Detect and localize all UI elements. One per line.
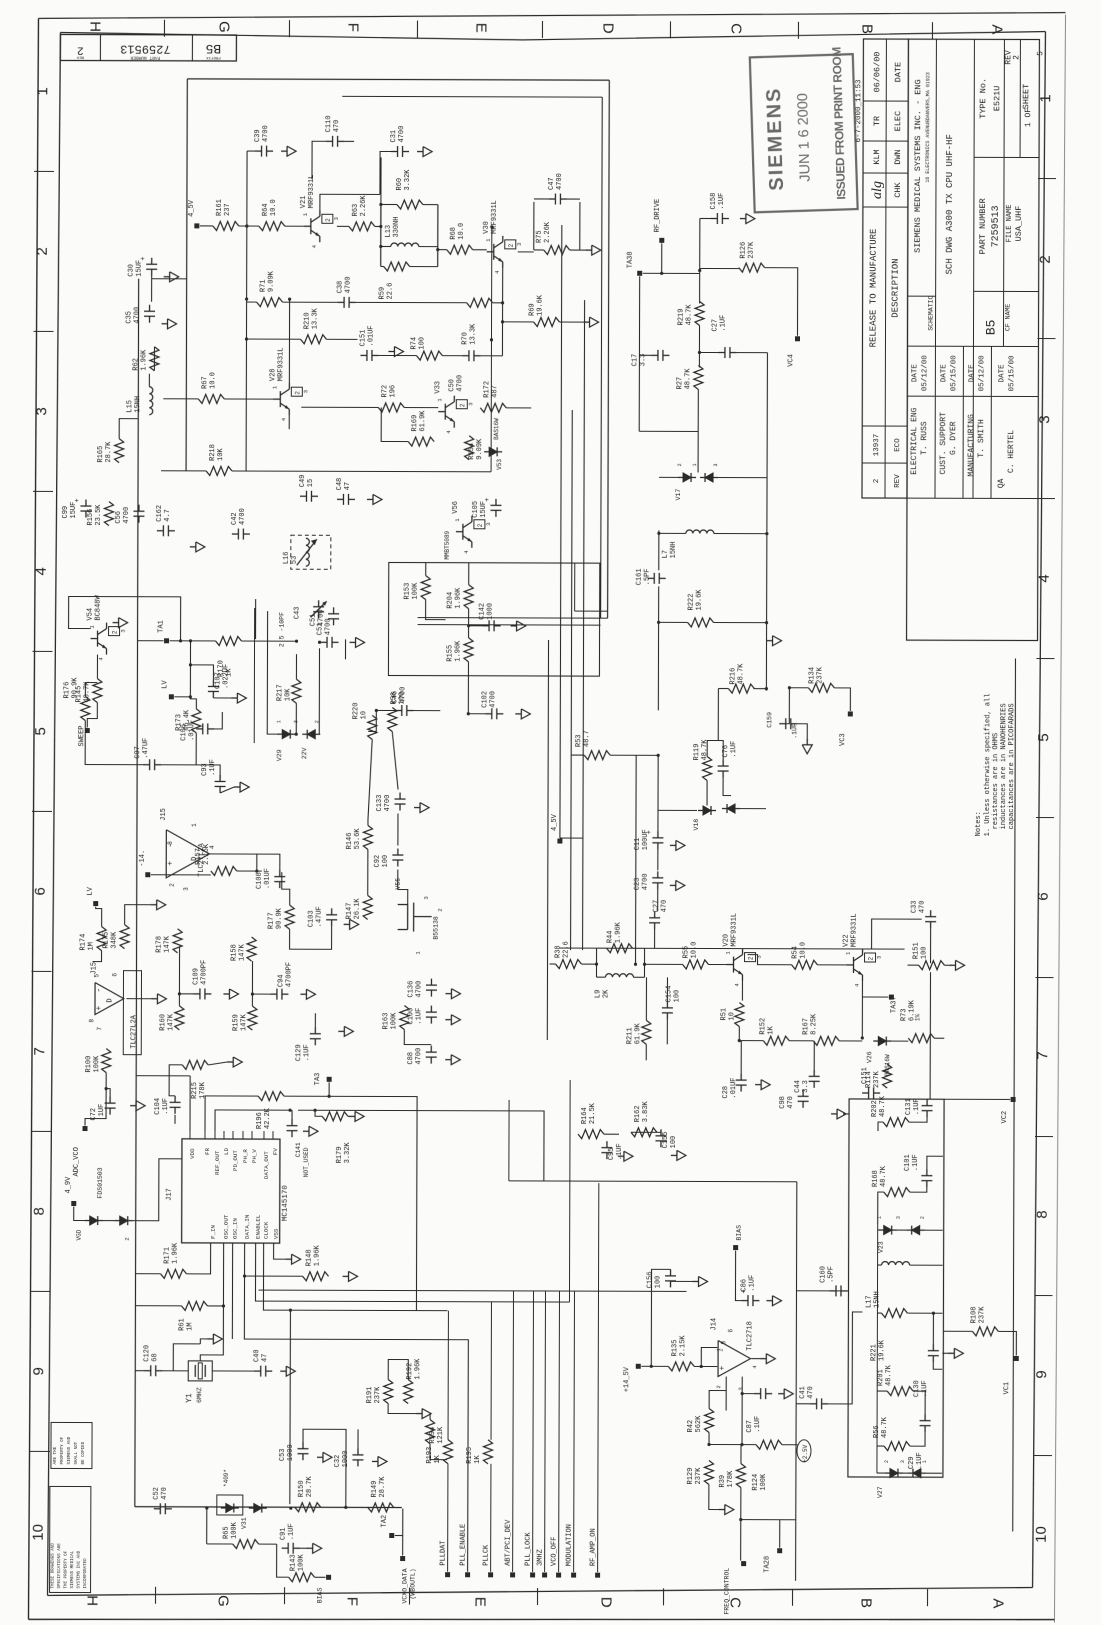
svg-text:C160: C160 xyxy=(820,1266,828,1283)
svg-text:C103: C103 xyxy=(308,910,316,927)
svg-text:100K: 100K xyxy=(412,582,420,600)
svg-text:DWN: DWN xyxy=(893,149,903,164)
svg-text:ELECTRICAL ENG: ELECTRICAL ENG xyxy=(910,407,919,474)
svg-text:9.09K: 9.09K xyxy=(476,438,484,460)
svg-text:C52: C52 xyxy=(153,1487,161,1500)
svg-text:J15: J15 xyxy=(90,962,98,975)
svg-text:CUST. SUPPORT: CUST. SUPPORT xyxy=(939,412,948,475)
svg-text:PLLCK: PLLCK xyxy=(483,1544,491,1566)
svg-text:1: 1 xyxy=(692,463,698,466)
svg-text:DATE: DATE xyxy=(911,364,919,383)
svg-text:FREQ_CONTROL: FREQ_CONTROL xyxy=(723,1568,730,1615)
svg-text:R126: R126 xyxy=(740,242,748,259)
svg-text:L13: L13 xyxy=(385,225,393,238)
svg-text:1M: 1M xyxy=(88,942,96,950)
svg-text:B5: B5 xyxy=(984,320,999,336)
svg-text:MRF9331L: MRF9331L xyxy=(308,175,316,209)
svg-text:PART NUMBER: PART NUMBER xyxy=(130,55,160,61)
svg-text:J17: J17 xyxy=(166,1188,174,1201)
svg-text:SIEMENS: SIEMENS xyxy=(763,86,788,191)
svg-text:R150: R150 xyxy=(298,1480,306,1497)
svg-text:15: 15 xyxy=(307,479,315,487)
svg-text:4: 4 xyxy=(33,567,50,575)
svg-text:4_5V: 4_5V xyxy=(551,813,559,831)
svg-text:19.6K: 19.6K xyxy=(696,589,704,611)
svg-text:15NH: 15NH xyxy=(873,1291,881,1308)
svg-text:2: 2 xyxy=(748,956,755,960)
svg-text:15UF: 15UF xyxy=(70,502,78,519)
svg-text:VC2: VC2 xyxy=(1001,1111,1009,1124)
svg-text:C156: C156 xyxy=(647,1271,655,1288)
svg-text:1: 1 xyxy=(922,1460,928,1463)
svg-text:C23: C23 xyxy=(634,878,642,891)
svg-text:28.7K: 28.7K xyxy=(379,1476,387,1498)
svg-text:53: 53 xyxy=(291,556,299,564)
svg-text:470: 470 xyxy=(333,120,341,133)
svg-text:2: 2 xyxy=(437,908,444,911)
svg-text:100K: 100K xyxy=(231,1521,239,1539)
svg-text:4: 4 xyxy=(209,845,216,849)
svg-text:+: + xyxy=(166,861,175,866)
svg-text:2: 2 xyxy=(873,479,881,484)
svg-text:3: 3 xyxy=(333,217,340,220)
svg-text:G. DYER: G. DYER xyxy=(949,421,958,455)
svg-text:C142: C142 xyxy=(479,603,487,620)
svg-text:(WBOUTL): (WBOUTL) xyxy=(410,1568,417,1599)
svg-text:R53: R53 xyxy=(575,734,583,747)
svg-text:R202: R202 xyxy=(871,1100,879,1117)
svg-text:C94: C94 xyxy=(277,975,285,988)
svg-text:Notes:: Notes: xyxy=(975,811,983,836)
svg-text:8: 8 xyxy=(88,1019,95,1023)
svg-text:.1UF: .1UF xyxy=(720,315,728,332)
svg-text:REF_OUT: REF_OUT xyxy=(214,1150,221,1175)
svg-text:OSC_OUT: OSC_OUT xyxy=(223,1214,230,1239)
svg-text:V53: V53 xyxy=(496,459,503,470)
svg-text:R151: R151 xyxy=(913,942,921,959)
svg-text:CLOCK: CLOCK xyxy=(263,1221,270,1239)
svg-text:DATE: DATE xyxy=(998,364,1006,383)
svg-text:C151: C151 xyxy=(359,330,367,347)
svg-text:R74: R74 xyxy=(410,337,418,350)
svg-text:TLC27L2A: TLC27L2A xyxy=(198,842,206,876)
svg-text:C41: C41 xyxy=(799,1386,807,1399)
svg-text:100: 100 xyxy=(670,1136,678,1149)
svg-text:C47: C47 xyxy=(548,177,556,190)
svg-text:TLC27L2A: TLC27L2A xyxy=(130,1014,138,1048)
svg-text:R69: R69 xyxy=(529,303,537,316)
svg-text:3: 3 xyxy=(120,629,127,632)
svg-text:T. SMITH: T. SMITH xyxy=(977,419,986,458)
svg-text:5: 5 xyxy=(93,974,100,978)
svg-text:alg: alg xyxy=(870,181,885,199)
svg-text:PH_R: PH_R xyxy=(242,1149,249,1163)
svg-text:H: H xyxy=(84,1595,101,1606)
svg-text:VC4: VC4 xyxy=(787,354,795,367)
svg-text:TA38: TA38 xyxy=(627,251,635,268)
svg-text:1.96K: 1.96K xyxy=(414,1358,422,1380)
svg-text:R160: R160 xyxy=(159,1014,167,1031)
svg-text:R152: R152 xyxy=(759,1018,767,1035)
svg-text:4700: 4700 xyxy=(384,795,392,812)
svg-text:2: 2 xyxy=(459,403,466,407)
svg-text:C162: C162 xyxy=(156,505,164,522)
svg-text:SIEMENS MEDICAL SYSTEMS INC. -: SIEMENS MEDICAL SYSTEMS INC. - ENG xyxy=(913,79,924,252)
svg-text:R175: R175 xyxy=(103,932,111,949)
svg-text:MRF9331L: MRF9331L xyxy=(731,913,739,947)
svg-text:C27: C27 xyxy=(712,319,720,332)
svg-text:TA1: TA1 xyxy=(158,620,166,633)
svg-text:E: E xyxy=(472,23,489,33)
svg-text:3: 3 xyxy=(896,1216,902,1219)
svg-text:R58: R58 xyxy=(390,692,398,705)
svg-text:4700PF: 4700PF xyxy=(285,962,293,987)
svg-text:REV: REV xyxy=(76,55,84,59)
svg-text:3: 3 xyxy=(737,1387,744,1390)
svg-text:48.7K: 48.7K xyxy=(881,1416,889,1438)
svg-text:V18: V18 xyxy=(693,819,700,831)
svg-text:C43: C43 xyxy=(294,607,302,620)
svg-text:100: 100 xyxy=(673,990,681,1003)
svg-text:R59: R59 xyxy=(379,287,387,300)
svg-text:C92: C92 xyxy=(374,855,382,868)
svg-text:R162: R162 xyxy=(634,1105,642,1122)
svg-text:100K: 100K xyxy=(760,1473,768,1491)
svg-text:19.6K: 19.6K xyxy=(878,1339,886,1361)
svg-text:MMBT5089: MMBT5089 xyxy=(444,530,451,559)
svg-text:3: 3 xyxy=(756,955,763,958)
svg-text:2: 2 xyxy=(715,1385,722,1388)
svg-text:NOT_USED: NOT_USED xyxy=(303,1147,310,1177)
svg-text:2: 2 xyxy=(1012,55,1021,60)
svg-text:2: 2 xyxy=(294,391,301,395)
svg-text:R39: R39 xyxy=(719,1475,727,1488)
svg-text:3: 3 xyxy=(183,887,190,891)
svg-text:48.7K: 48.7K xyxy=(737,663,745,685)
svg-text:R178: R178 xyxy=(156,936,164,953)
svg-text:E521U: E521U xyxy=(992,86,1002,112)
svg-text:TA3: TA3 xyxy=(314,1073,322,1086)
svg-text:VC1: VC1 xyxy=(1003,1382,1011,1395)
svg-text:2: 2 xyxy=(169,883,176,887)
svg-text:CHK: CHK xyxy=(893,182,903,198)
svg-text:4700: 4700 xyxy=(262,125,270,142)
svg-text:R75: R75 xyxy=(536,230,544,243)
svg-text:100: 100 xyxy=(655,1276,663,1289)
svg-text:10: 10 xyxy=(30,1524,47,1541)
svg-text:.1UF: .1UF xyxy=(913,1098,921,1115)
svg-text:R176: R176 xyxy=(63,682,71,699)
svg-text:6: 6 xyxy=(32,887,49,895)
svg-text:237: 237 xyxy=(224,203,232,216)
svg-text:3: 3 xyxy=(516,243,523,246)
svg-text:R164: R164 xyxy=(581,1107,589,1124)
svg-text:RELEASE TO MANUFACTURE: RELEASE TO MANUFACTURE xyxy=(868,229,878,348)
svg-text:R143: R143 xyxy=(290,1554,298,1571)
svg-text:3: 3 xyxy=(293,720,299,723)
svg-text:V31: V31 xyxy=(241,1517,248,1529)
svg-text:SHALL NOT: SHALL NOT xyxy=(75,1441,79,1464)
svg-text:6: 6 xyxy=(111,973,118,977)
svg-text:ECO: ECO xyxy=(894,438,902,452)
svg-text:61.9K: 61.9K xyxy=(419,410,427,432)
svg-text:C133: C133 xyxy=(376,795,384,812)
svg-text:C155: C155 xyxy=(662,1132,670,1149)
svg-text:15UF: 15UF xyxy=(136,260,144,277)
svg-text:FV: FV xyxy=(272,1148,279,1156)
svg-text:48.7K: 48.7K xyxy=(885,1364,893,1386)
svg-text:10: 10 xyxy=(728,1012,736,1020)
svg-text:.1UF: .1UF xyxy=(718,193,726,210)
svg-text:BE COPIED: BE COPIED xyxy=(82,1441,86,1464)
svg-text:C158: C158 xyxy=(710,193,718,210)
svg-text:V17: V17 xyxy=(675,489,682,501)
svg-text:R146: R146 xyxy=(346,833,354,850)
svg-text:CF NAME: CF NAME xyxy=(1005,304,1012,331)
svg-text:.01UF: .01UF xyxy=(188,720,196,741)
svg-text:SCH DWG A300 TX CPU UHF-HF: SCH DWG A300 TX CPU UHF-HF xyxy=(945,134,955,274)
svg-text:TYPE No.: TYPE No. xyxy=(978,78,988,119)
svg-text:R67: R67 xyxy=(201,376,209,389)
svg-text:B: B xyxy=(858,24,875,34)
svg-text:MANUFACTURING: MANUFACTURING xyxy=(967,414,976,477)
svg-text:2.26K: 2.26K xyxy=(360,195,368,217)
svg-text:.1UF: .1UF xyxy=(209,759,217,776)
svg-text:DATE: DATE xyxy=(940,364,948,383)
svg-text:8: 8 xyxy=(167,841,174,845)
svg-text:D: D xyxy=(598,1597,615,1608)
svg-text:DESCRIPTION: DESCRIPTION xyxy=(891,258,901,317)
svg-text:BIAS: BIAS xyxy=(317,1588,324,1604)
svg-text:R27: R27 xyxy=(676,377,684,390)
svg-text:PD_OUT: PD_OUT xyxy=(232,1150,239,1171)
svg-text:.47UF: .47UF xyxy=(142,738,150,759)
svg-text:15NH: 15NH xyxy=(134,396,142,413)
svg-text:C106: C106 xyxy=(180,724,188,741)
svg-text:ENABLEL: ENABLEL xyxy=(255,1214,262,1239)
svg-text:VSS: VSS xyxy=(273,1228,280,1239)
svg-text:R165: R165 xyxy=(97,446,105,463)
svg-text:.1UF: .1UF xyxy=(288,1523,296,1540)
svg-text:G: G xyxy=(215,21,232,33)
svg-text:R65: R65 xyxy=(223,1526,231,1539)
svg-text:48.7K: 48.7K xyxy=(83,681,91,703)
svg-text:TA37: TA37 xyxy=(890,996,898,1013)
svg-text:VCXO_DATA: VCXO_DATA xyxy=(402,1568,409,1603)
svg-text:C131: C131 xyxy=(905,1098,913,1115)
svg-text:100K: 100K xyxy=(298,1554,306,1572)
svg-text:8: 8 xyxy=(1034,1210,1051,1218)
svg-text:C161: C161 xyxy=(636,568,644,585)
svg-text:V54: V54 xyxy=(87,608,95,621)
svg-text:21.5K: 21.5K xyxy=(589,1102,597,1124)
svg-text:LD: LD xyxy=(223,1147,230,1155)
svg-text:1.96K: 1.96K xyxy=(615,921,623,943)
svg-text:R220: R220 xyxy=(352,703,360,720)
svg-text:C141: C141 xyxy=(295,1142,302,1157)
svg-text:100K: 100K xyxy=(390,1012,398,1030)
svg-text:*409*: *409* xyxy=(223,1469,230,1487)
svg-text:237K: 237K xyxy=(816,666,824,684)
svg-text:4_5V: 4_5V xyxy=(188,199,196,217)
svg-text:16 ELECTRONICS AVENUE: 16 ELECTRONICS AVENUE xyxy=(925,120,931,183)
svg-text:.1UF: .1UF xyxy=(162,1098,170,1115)
svg-text:3: 3 xyxy=(33,407,50,415)
svg-text:C97: C97 xyxy=(134,746,142,759)
svg-text:MRF9331L: MRF9331L xyxy=(851,913,859,947)
svg-text:R156: R156 xyxy=(87,509,95,526)
svg-text:A: A xyxy=(988,24,1005,34)
svg-text:R71: R71 xyxy=(260,279,268,292)
svg-text:R169: R169 xyxy=(411,415,419,432)
svg-text:V21: V21 xyxy=(300,196,308,209)
svg-text:R179: R179 xyxy=(336,1147,344,1164)
svg-text:C50: C50 xyxy=(448,379,456,392)
svg-text:3: 3 xyxy=(423,896,430,899)
svg-text:10K: 10K xyxy=(284,688,292,701)
svg-text:C109: C109 xyxy=(192,968,200,985)
svg-text:PLL_ENABLE: PLL_ENABLE xyxy=(460,1524,468,1566)
svg-text:L7: L7 xyxy=(662,550,670,558)
svg-text:237K: 237K xyxy=(978,1306,986,1324)
svg-text:C120: C120 xyxy=(143,1345,151,1362)
svg-text:C107: C107 xyxy=(214,672,222,689)
svg-text:TLC2718: TLC2718 xyxy=(746,1321,754,1350)
svg-text:R55: R55 xyxy=(683,946,691,959)
svg-text:100: 100 xyxy=(418,337,426,350)
svg-text:7259513: 7259513 xyxy=(991,205,1002,247)
svg-text:RF_AMP_ON: RF_AMP_ON xyxy=(590,1528,598,1566)
svg-text:3MHZ: 3MHZ xyxy=(537,1549,545,1566)
svg-text:2K: 2K xyxy=(602,989,610,998)
svg-text:13.3K: 13.3K xyxy=(469,323,477,345)
svg-text:05/12/00: 05/12/00 xyxy=(978,355,986,392)
svg-text:1000: 1000 xyxy=(487,603,495,620)
svg-text:+2.5V: +2.5V xyxy=(802,1444,809,1462)
svg-text:4700: 4700 xyxy=(239,508,247,525)
svg-text:C102: C102 xyxy=(481,691,489,708)
svg-text:28.7K: 28.7K xyxy=(306,1475,314,1497)
svg-text:VGD: VGD xyxy=(76,1229,83,1240)
svg-text:J15: J15 xyxy=(160,808,168,821)
svg-text:C32: C32 xyxy=(334,1455,342,1468)
svg-text:7: 7 xyxy=(1034,1051,1051,1059)
svg-text:SIEMENS MEDICAL: SIEMENS MEDICAL xyxy=(71,1550,75,1588)
svg-text:C129: C129 xyxy=(295,1044,303,1061)
svg-text:C31: C31 xyxy=(390,130,398,143)
svg-text:R51: R51 xyxy=(720,1008,728,1021)
svg-text:FDS01503: FDS01503 xyxy=(97,1167,104,1198)
svg-text:.1UF: .1UF xyxy=(791,723,798,739)
svg-text:C42: C42 xyxy=(231,512,239,525)
svg-text:+: + xyxy=(95,1006,104,1011)
svg-text:LV: LV xyxy=(87,886,95,895)
svg-text:L9: L9 xyxy=(594,990,602,998)
svg-text:J14: J14 xyxy=(710,1318,718,1331)
svg-text:90.9K: 90.9K xyxy=(71,677,79,699)
svg-text:1: 1 xyxy=(276,720,282,723)
svg-text:R219: R219 xyxy=(678,309,686,326)
svg-text:23.5K: 23.5K xyxy=(95,504,103,526)
svg-text:C53: C53 xyxy=(279,1449,287,1462)
svg-text:R100: R100 xyxy=(85,1056,93,1073)
svg-text:.1UF: .1UF xyxy=(303,1044,311,1061)
svg-text:Y1: Y1 xyxy=(185,1393,194,1403)
svg-text:C29: C29 xyxy=(908,1457,916,1470)
svg-text:R222: R222 xyxy=(688,594,696,611)
svg-text:2: 2 xyxy=(508,243,515,247)
svg-text:.1UF: .1UF xyxy=(730,741,738,758)
svg-text:R218: R218 xyxy=(209,444,217,461)
svg-text:R56: R56 xyxy=(873,1425,881,1438)
svg-text:237K: 237K xyxy=(748,241,756,259)
svg-text:C95: C95 xyxy=(608,1148,616,1161)
svg-text:28.7K: 28.7K xyxy=(105,441,113,463)
svg-text:C87: C87 xyxy=(746,1420,754,1433)
svg-text:SYSTEMS INC AND: SYSTEMS INC AND xyxy=(78,1550,82,1588)
svg-text:5: 5 xyxy=(1035,733,1052,741)
svg-text:237K: 237K xyxy=(873,1070,881,1088)
svg-text:15NH: 15NH xyxy=(670,542,678,559)
svg-text:C88: C88 xyxy=(407,1052,415,1065)
svg-text:3.83K: 3.83K xyxy=(642,1100,650,1122)
svg-text:DATA_IN: DATA_IN xyxy=(244,1214,251,1239)
svg-text:V56: V56 xyxy=(452,501,460,514)
svg-text:1K: 1K xyxy=(767,1025,775,1034)
svg-text:R72: R72 xyxy=(381,385,389,398)
svg-text:7: 7 xyxy=(96,1027,103,1031)
svg-text:100UF: 100UF xyxy=(642,829,650,850)
svg-text:R174: R174 xyxy=(80,934,88,951)
svg-text:3: 3 xyxy=(302,390,309,393)
svg-text:.5PF: .5PF xyxy=(828,1266,836,1283)
svg-text:05/15/00: 05/15/00 xyxy=(950,355,958,392)
svg-text:FILE NAME: FILE NAME xyxy=(1006,205,1014,243)
svg-text:VCO_OFF: VCO_OFF xyxy=(551,1537,559,1566)
svg-text:.022UF: .022UF xyxy=(222,664,230,689)
svg-text:4.7: 4.7 xyxy=(164,509,172,522)
svg-text:V23: V23 xyxy=(878,1241,885,1253)
svg-text:C159: C159 xyxy=(766,712,773,728)
svg-text:R221: R221 xyxy=(870,1344,878,1361)
svg-text:C104: C104 xyxy=(154,1098,162,1115)
svg-text:TA28: TA28 xyxy=(764,1556,772,1573)
svg-text:C91: C91 xyxy=(280,1528,288,1541)
svg-text:R158: R158 xyxy=(231,944,239,961)
svg-text:.1UF: .1UF xyxy=(754,1416,762,1433)
svg-text:2: 2 xyxy=(920,1216,926,1219)
svg-text:ABT/PCI_DEV: ABT/PCI_DEV xyxy=(505,1519,513,1566)
svg-text:7: 7 xyxy=(31,1047,48,1055)
svg-text:C98: C98 xyxy=(779,1096,787,1109)
svg-text:3: 3 xyxy=(485,522,492,525)
svg-text:470: 470 xyxy=(919,901,927,914)
svg-text:4700: 4700 xyxy=(398,126,406,143)
svg-text:JUN 1 6 2000: JUN 1 6 2000 xyxy=(795,93,814,182)
svg-text:F_IN: F_IN xyxy=(210,1224,217,1238)
svg-text:C27: C27 xyxy=(653,900,661,913)
svg-text:470: 470 xyxy=(807,1386,815,1399)
svg-text:R161: R161 xyxy=(216,199,224,216)
svg-text:V28: V28 xyxy=(269,369,277,382)
svg-text:C86: C86 xyxy=(740,1279,748,1292)
svg-text:4700: 4700 xyxy=(456,375,464,392)
svg-text:C154: C154 xyxy=(665,986,673,1003)
svg-text:9: 9 xyxy=(1033,1370,1050,1378)
svg-text:48.7K: 48.7K xyxy=(879,1095,887,1117)
svg-text:C99: C99 xyxy=(62,506,70,519)
svg-text:47: 47 xyxy=(344,482,352,490)
